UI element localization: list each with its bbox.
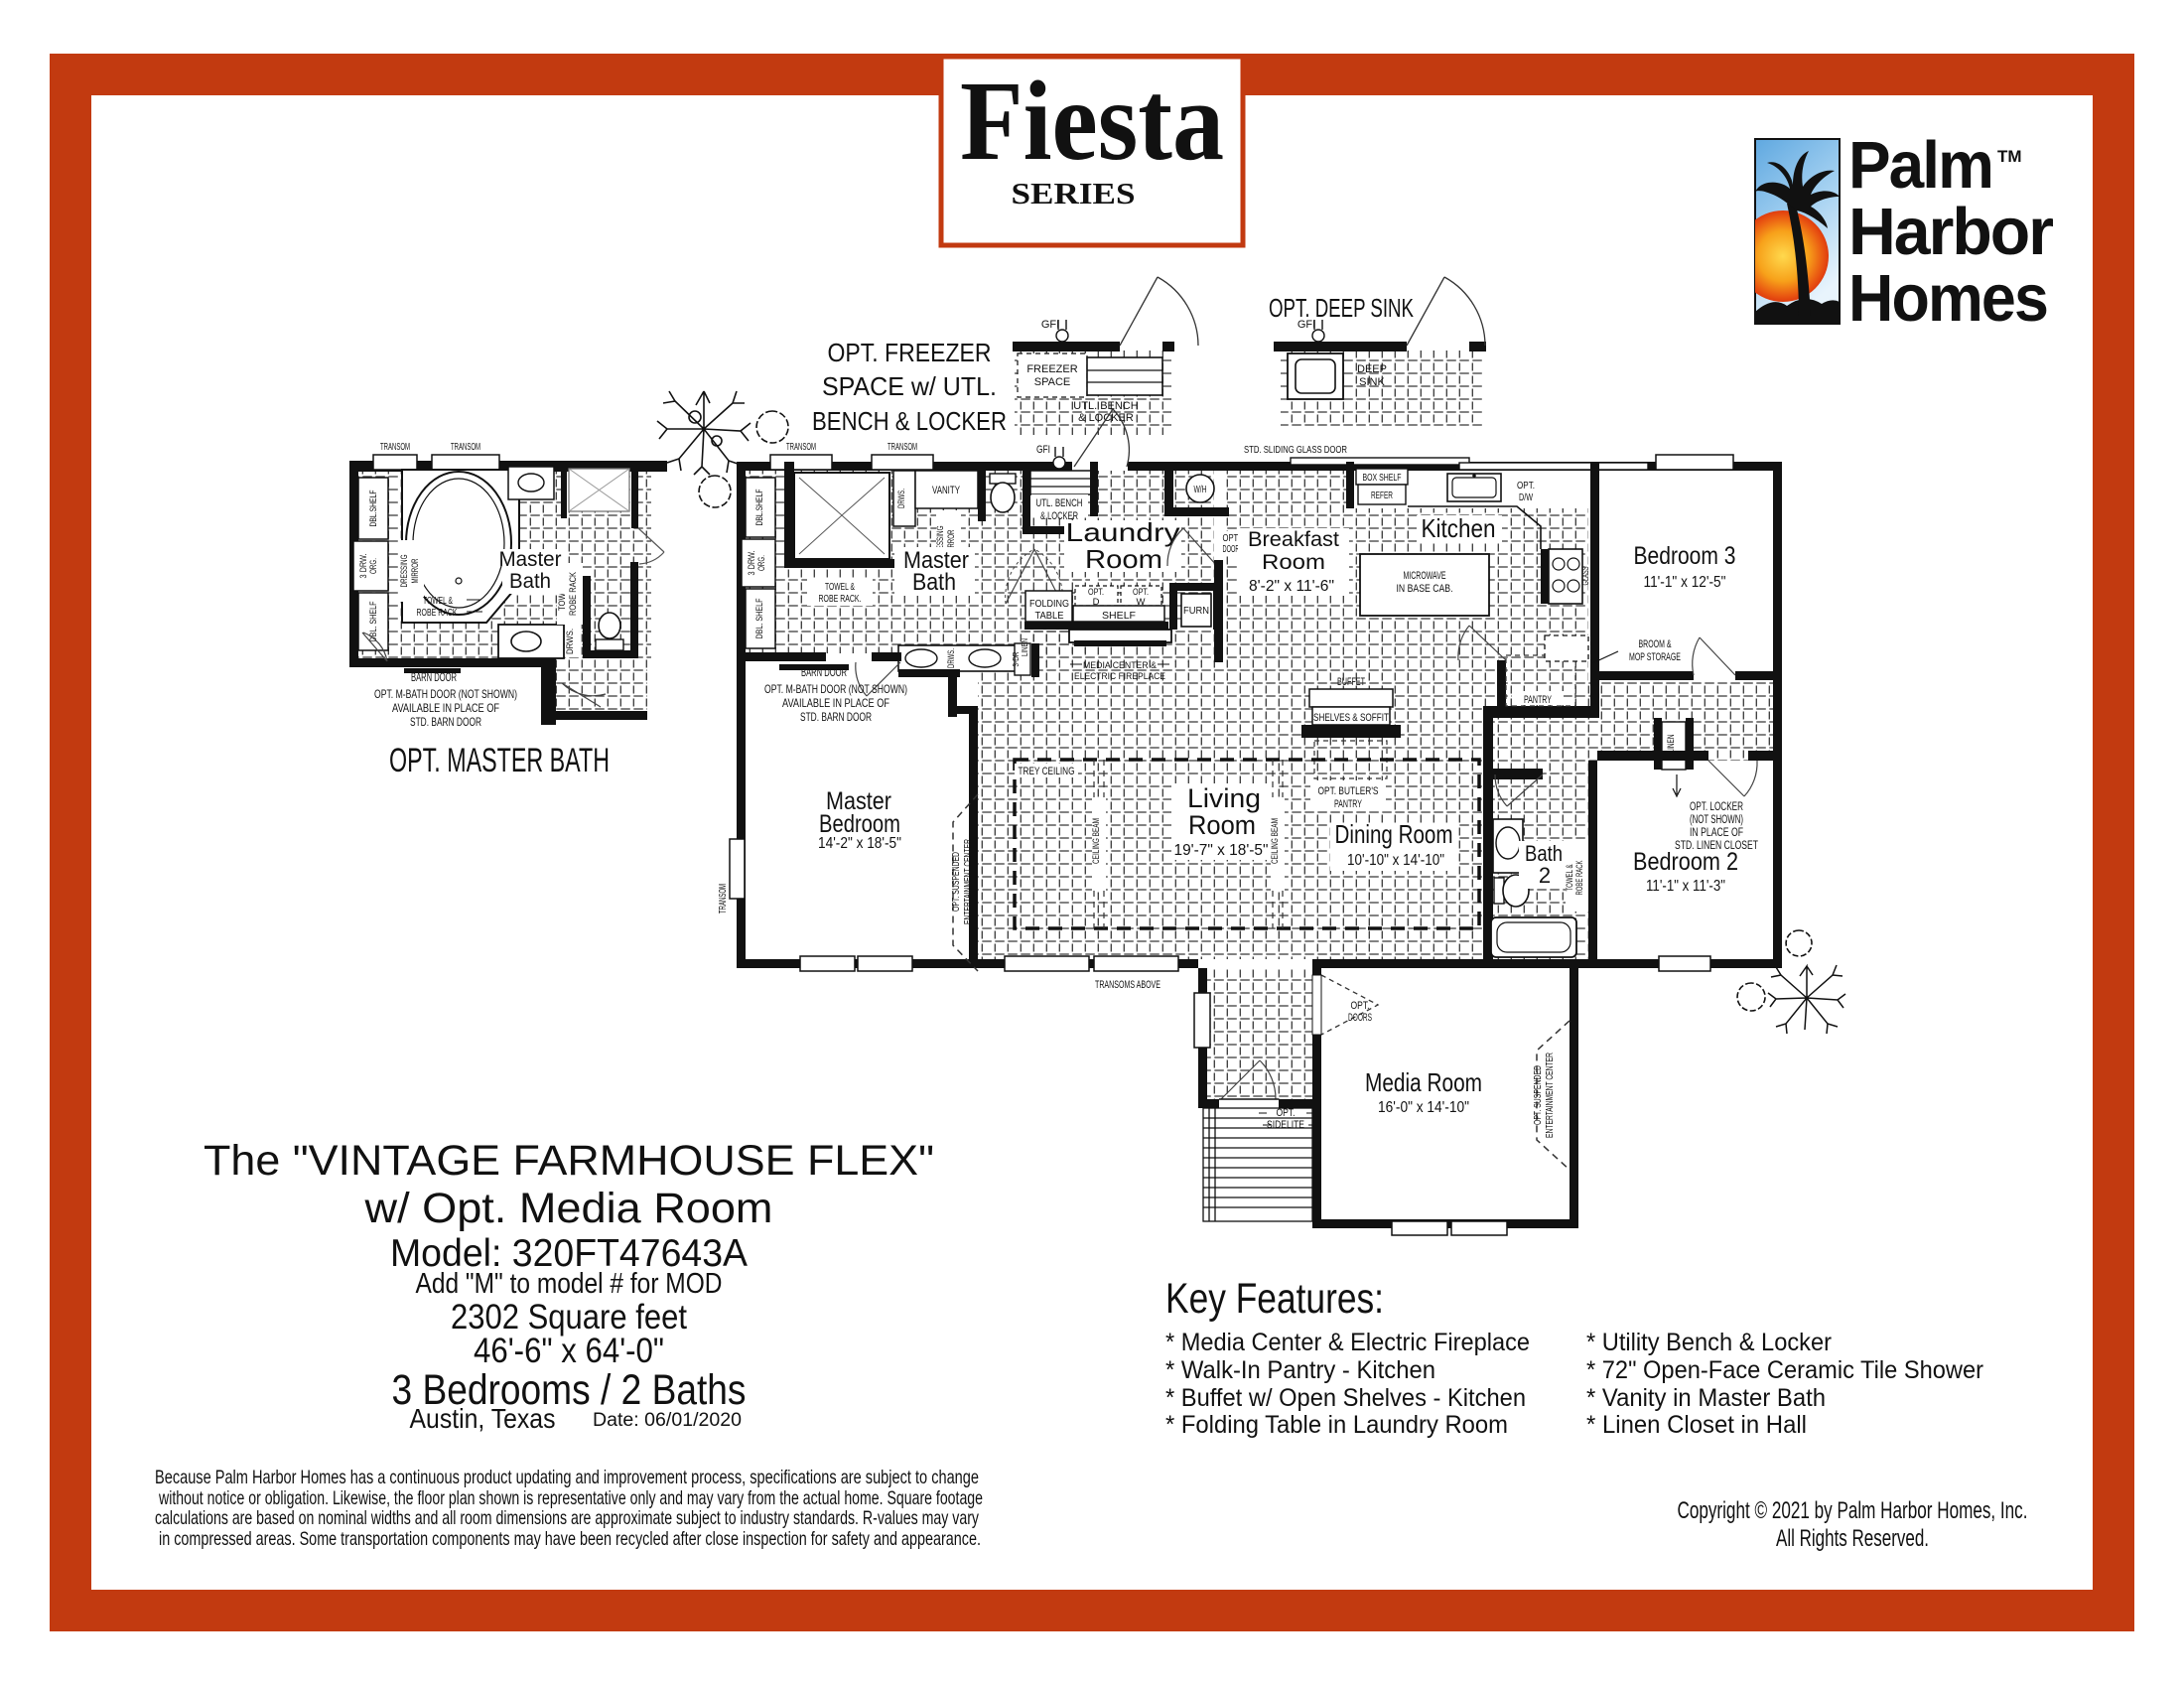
svg-text:TRANSOM: TRANSOM <box>380 442 410 453</box>
svg-text:FURN: FURN <box>1183 606 1209 617</box>
svg-text:TRANSOM: TRANSOM <box>451 442 480 453</box>
svg-text:BARN DOOR: BARN DOOR <box>411 670 457 684</box>
svg-text:Bath: Bath <box>912 569 956 596</box>
svg-text:IN PLACE OF: IN PLACE OF <box>1690 827 1743 839</box>
svg-text:DRESSING: DRESSING <box>399 555 410 588</box>
svg-text:GFI: GFI <box>1297 319 1315 331</box>
svg-text:OPT. LOCKER: OPT. LOCKER <box>1690 801 1743 813</box>
svg-text:MIRROR: MIRROR <box>410 558 421 583</box>
svg-text:Fiesta: Fiesta <box>960 58 1224 184</box>
svg-text:Room: Room <box>1085 544 1162 574</box>
svg-text:OPT.: OPT. <box>1277 1107 1296 1119</box>
svg-text:calculations are based on nomi: calculations are based on nominal widths… <box>155 1507 979 1529</box>
svg-text:Bedroom: Bedroom <box>819 810 900 838</box>
svg-text:REFER: REFER <box>1371 491 1393 501</box>
svg-text:OPT.: OPT. <box>1223 533 1240 544</box>
svg-text:* Vanity in Master Bath: * Vanity in Master Bath <box>1586 1384 1826 1412</box>
svg-text:without notice or obligation.: without notice or obligation. Likewise, … <box>158 1487 983 1509</box>
svg-text:OPT. M-BATH DOOR (NOT SHOWN): OPT. M-BATH DOOR (NOT SHOWN) <box>374 687 517 701</box>
svg-text:* 72" Open-Face Ceramic Tile S: * 72" Open-Face Ceramic Tile Shower <box>1586 1356 1983 1384</box>
svg-text:Because Palm Harbor Homes has: Because Palm Harbor Homes has a continuo… <box>155 1467 979 1488</box>
svg-text:Bedroom 3: Bedroom 3 <box>1634 542 1736 570</box>
svg-text:Master: Master <box>499 548 562 571</box>
svg-text:11'-1" x 12'-5": 11'-1" x 12'-5" <box>1644 574 1726 591</box>
svg-text:* Walk-In Pantry - Kitchen: * Walk-In Pantry - Kitchen <box>1165 1356 1435 1384</box>
svg-text:STD. BARN DOOR: STD. BARN DOOR <box>410 715 481 729</box>
svg-text:14'-2" x 18'-5": 14'-2" x 18'-5" <box>818 835 901 852</box>
svg-text:UTL. BENCH: UTL. BENCH <box>1073 400 1138 412</box>
svg-text:46'-6" x 64'-0": 46'-6" x 64'-0" <box>474 1332 664 1370</box>
svg-text:16'-0" x 14'-10": 16'-0" x 14'-10" <box>1378 1099 1469 1116</box>
svg-text:19'-7" x 18'-5": 19'-7" x 18'-5" <box>1174 842 1269 859</box>
svg-text:(NOT SHOWN): (NOT SHOWN) <box>1690 814 1743 826</box>
svg-text:GFI: GFI <box>1036 444 1050 456</box>
svg-text:Austin, Texas: Austin, Texas <box>410 1403 556 1434</box>
svg-text:MOP STORAGE: MOP STORAGE <box>1629 651 1681 663</box>
svg-text:OPT. SUSPENDED: OPT. SUSPENDED <box>1533 1065 1544 1125</box>
svg-text:BENCH & LOCKER: BENCH & LOCKER <box>812 406 1007 436</box>
svg-text:AVAILABLE IN PLACE OF: AVAILABLE IN PLACE OF <box>782 696 889 710</box>
svg-text:DOOR: DOOR <box>1223 544 1240 555</box>
svg-text:All Rights Reserved.: All Rights Reserved. <box>1776 1525 1929 1552</box>
svg-text:FREEZER: FREEZER <box>1026 363 1077 375</box>
svg-text:BUFFET: BUFFET <box>1337 676 1365 688</box>
svg-text:DEEP: DEEP <box>1357 363 1387 375</box>
svg-text:TRANSOM: TRANSOM <box>718 884 729 914</box>
svg-text:TABLE: TABLE <box>1035 611 1064 622</box>
svg-text:ROBE RACK: ROBE RACK <box>568 572 578 616</box>
svg-text:2: 2 <box>1539 863 1551 888</box>
svg-text:ROBE RACK: ROBE RACK <box>1574 861 1584 896</box>
svg-text:SPACE w/ UTL.: SPACE w/ UTL. <box>822 371 997 401</box>
svg-text:GFI: GFI <box>1041 319 1059 331</box>
svg-text:ENTERTAINMENT CENTER: ENTERTAINMENT CENTER <box>1545 1053 1556 1138</box>
svg-text:TM: TM <box>1997 147 2022 166</box>
svg-text:OPT. MASTER BATH: OPT. MASTER BATH <box>389 742 610 779</box>
svg-text:DRWS.: DRWS. <box>565 629 575 654</box>
svg-text:DRWS.: DRWS. <box>896 489 907 508</box>
svg-text:SHELF: SHELF <box>1102 611 1136 622</box>
svg-text:* Linen Closet in Hall: * Linen Closet in Hall <box>1586 1411 1807 1439</box>
svg-text:* Folding Table in Laundry Roo: * Folding Table in Laundry Room <box>1165 1411 1508 1439</box>
svg-text:TOWEL &: TOWEL & <box>1565 865 1574 892</box>
svg-text:ROBE RACK.: ROBE RACK. <box>417 608 460 619</box>
svg-text:TRANSOM: TRANSOM <box>887 442 917 453</box>
svg-text:MICROWAVE: MICROWAVE <box>1404 570 1446 582</box>
svg-text:TRANSOM: TRANSOM <box>786 442 816 453</box>
svg-text:LINEN: LINEN <box>1666 735 1676 754</box>
svg-text:UTL. BENCH: UTL. BENCH <box>1036 497 1083 509</box>
svg-text:CEILING BEAM: CEILING BEAM <box>1091 818 1101 864</box>
svg-text:SINK: SINK <box>1359 376 1385 388</box>
svg-text:TREY CEILING: TREY CEILING <box>1019 766 1075 777</box>
svg-text:OPT. BUTLER'S: OPT. BUTLER'S <box>1318 785 1379 797</box>
svg-text:OPT. M-BATH DOOR (NOT SHOWN): OPT. M-BATH DOOR (NOT SHOWN) <box>764 682 907 696</box>
svg-text:ROBE RACK.: ROBE RACK. <box>819 594 862 605</box>
svg-text:STD. SLIDING GLASS DOOR: STD. SLIDING GLASS DOOR <box>1244 444 1347 456</box>
svg-text:OPT. SUSPENDED: OPT. SUSPENDED <box>951 852 962 912</box>
svg-text:ORG.: ORG. <box>368 558 379 574</box>
svg-text:PANTRY: PANTRY <box>1524 694 1552 706</box>
svg-text:DRWS.: DRWS. <box>946 648 957 668</box>
svg-text:Room: Room <box>1262 551 1325 574</box>
svg-text:TRANSOMS ABOVE: TRANSOMS ABOVE <box>1095 979 1160 991</box>
svg-text:CEILING BEAM: CEILING BEAM <box>1270 818 1280 864</box>
svg-text:DBL. SHELF: DBL. SHELF <box>754 598 765 638</box>
svg-text:Copyright © 2021 by Palm Harbo: Copyright © 2021 by Palm Harbor Homes, I… <box>1678 1497 2028 1524</box>
svg-text:* Buffet w/ Open Shelves - Kit: * Buffet w/ Open Shelves - Kitchen <box>1165 1384 1526 1412</box>
svg-text:BARN DOOR: BARN DOOR <box>801 665 847 679</box>
svg-text:ELECTRIC FIREPLACE: ELECTRIC FIREPLACE <box>1074 671 1165 682</box>
svg-text:* Utility Bench & Locker: * Utility Bench & Locker <box>1586 1329 1832 1356</box>
svg-text:FOLDING: FOLDING <box>1029 599 1069 610</box>
svg-text:IN BASE CAB.: IN BASE CAB. <box>1397 583 1453 595</box>
svg-text:Key Features:: Key Features: <box>1165 1276 1384 1323</box>
svg-text:ENTERTAINMENT CENTER: ENTERTAINMENT CENTER <box>963 839 974 924</box>
svg-text:DOORS: DOORS <box>1348 1012 1372 1024</box>
svg-text:OPT. DEEP SINK: OPT. DEEP SINK <box>1269 293 1414 323</box>
svg-text:Kitchen: Kitchen <box>1422 513 1496 543</box>
svg-text:MEDIA CENTER &: MEDIA CENTER & <box>1083 660 1158 671</box>
svg-text:ORG.: ORG. <box>756 555 767 571</box>
svg-text:in compressed areas. Some tran: in compressed areas. Some transportation… <box>159 1528 981 1550</box>
svg-text:DBL.SHELF: DBL.SHELF <box>754 489 765 525</box>
svg-text:Homes: Homes <box>1848 261 2047 336</box>
svg-text:* Media Center & Electric Fire: * Media Center & Electric Fireplace <box>1165 1329 1530 1356</box>
svg-text:Date: 06/01/2020: Date: 06/01/2020 <box>593 1410 742 1431</box>
svg-text:SERIES: SERIES <box>1012 176 1136 211</box>
svg-text:D/W: D/W <box>1519 492 1533 503</box>
svg-text:SIDELITE: SIDELITE <box>1267 1119 1304 1131</box>
svg-text:w/ Opt. Media Room: w/ Opt. Media Room <box>363 1185 772 1232</box>
svg-text:DBL.SHELF: DBL.SHELF <box>368 490 379 526</box>
svg-text:11'-1" x 11'-3": 11'-1" x 11'-3" <box>1646 878 1725 895</box>
svg-text:LINEN: LINEN <box>1020 638 1029 656</box>
svg-text:PANTRY: PANTRY <box>1334 798 1362 810</box>
svg-text:The "VINTAGE FARMHOUSE FLEX": The "VINTAGE FARMHOUSE FLEX" <box>204 1137 934 1185</box>
svg-text:TOWEL &: TOWEL & <box>825 582 855 593</box>
svg-text:Add "M" to model # for MOD: Add "M" to model # for MOD <box>416 1268 723 1300</box>
svg-text:Living: Living <box>1187 783 1261 813</box>
svg-text:Harbor: Harbor <box>1848 195 2054 269</box>
svg-text:W/H: W/H <box>1194 485 1207 495</box>
svg-text:Room: Room <box>1188 810 1256 840</box>
svg-text:OPT.: OPT. <box>1351 1000 1370 1012</box>
svg-text:Laundry: Laundry <box>1066 517 1180 547</box>
svg-text:TOWEL &: TOWEL & <box>423 596 453 607</box>
svg-text:STD. BARN DOOR: STD. BARN DOOR <box>800 710 872 724</box>
svg-text:SPACE: SPACE <box>1034 376 1070 388</box>
svg-text:Media Room: Media Room <box>1365 1067 1482 1097</box>
svg-text:Bedroom 2: Bedroom 2 <box>1633 848 1738 876</box>
svg-text:8'-2" x 11'-6": 8'-2" x 11'-6" <box>1249 578 1334 595</box>
svg-text:BOX SHELF: BOX SHELF <box>1363 473 1402 484</box>
svg-text:Bath: Bath <box>509 570 551 593</box>
svg-text:VANITY: VANITY <box>932 485 960 496</box>
svg-text:OPT. FREEZER: OPT. FREEZER <box>828 338 992 367</box>
svg-text:Palm: Palm <box>1848 128 1992 203</box>
svg-text:Breakfast: Breakfast <box>1248 528 1339 551</box>
svg-text:Dining Room: Dining Room <box>1335 819 1453 849</box>
svg-text:AVAILABLE IN PLACE OF: AVAILABLE IN PLACE OF <box>392 701 499 715</box>
svg-text:& LOCKER: & LOCKER <box>1078 412 1134 424</box>
svg-text:BROOM &: BROOM & <box>1639 638 1672 650</box>
svg-text:OPT.: OPT. <box>1517 480 1535 492</box>
svg-text:SHELVES & SOFFIT: SHELVES & SOFFIT <box>1313 712 1389 724</box>
svg-text:10'-10" x 14'-10": 10'-10" x 14'-10" <box>1347 852 1444 869</box>
